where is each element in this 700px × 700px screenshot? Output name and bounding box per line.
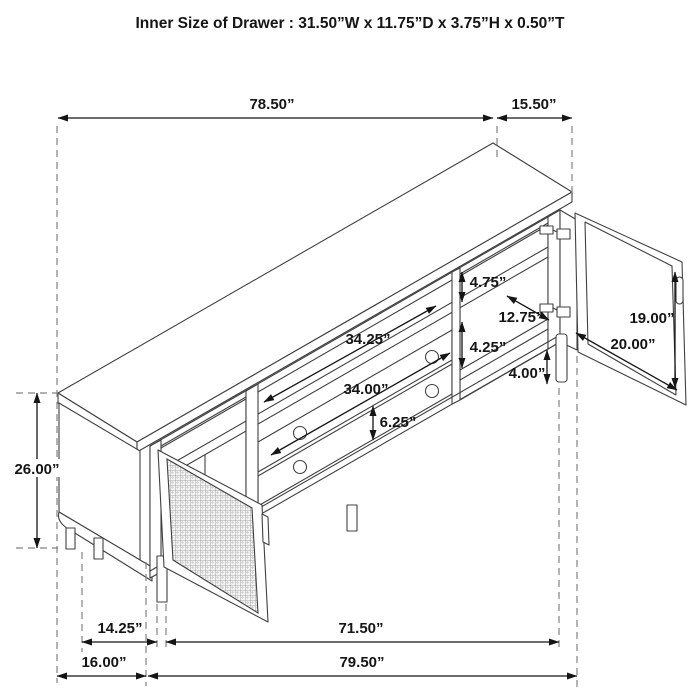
dim-label-overall-top: 78.50”	[249, 96, 294, 113]
leg-center	[347, 505, 357, 531]
dim-label-gap-top: 4.75”	[470, 274, 507, 291]
dimension-diagram: Inner Size of Drawer : 31.50”W x 11.75”D…	[0, 0, 700, 700]
dim-label-drawer-height: 6.25”	[380, 414, 417, 431]
dim-label-inner-bottom: 71.50”	[338, 620, 383, 637]
diagram-canvas: Inner Size of Drawer : 31.50”W x 11.75”D…	[0, 0, 700, 700]
dim-label-leg-height: 4.00”	[509, 365, 546, 382]
drawer-knob	[294, 461, 307, 474]
glass-door-open	[575, 213, 686, 405]
dim-label-left-inset: 14.25”	[97, 620, 142, 637]
dim-label-left-end: 16.00”	[81, 654, 126, 671]
door-handle	[676, 277, 683, 304]
leg-back-left	[94, 538, 103, 559]
dim-label-gap-mid: 4.25”	[470, 339, 507, 356]
drawer-knob	[426, 351, 439, 364]
dim-label-shelf-depth: 12.75”	[498, 309, 543, 326]
dim-label-door-height: 19.00”	[629, 310, 674, 327]
dim-label-right-top: 15.50”	[511, 96, 556, 113]
leg-front-right	[556, 334, 567, 382]
dim-label-height: 26.00”	[14, 461, 59, 478]
leg-front-left	[66, 528, 75, 549]
dim-label-door-width: 20.00”	[610, 336, 655, 353]
drawer-knob	[426, 385, 439, 398]
dim-label-opening-width: 34.25”	[345, 331, 390, 348]
drawer-knob	[294, 427, 307, 440]
dim-label-overall-bottom: 79.50”	[339, 654, 384, 671]
dim-label-drawer-width: 34.00”	[343, 381, 388, 398]
page-title: Inner Size of Drawer : 31.50”W x 11.75”D…	[135, 15, 565, 32]
door-handle	[262, 514, 269, 545]
